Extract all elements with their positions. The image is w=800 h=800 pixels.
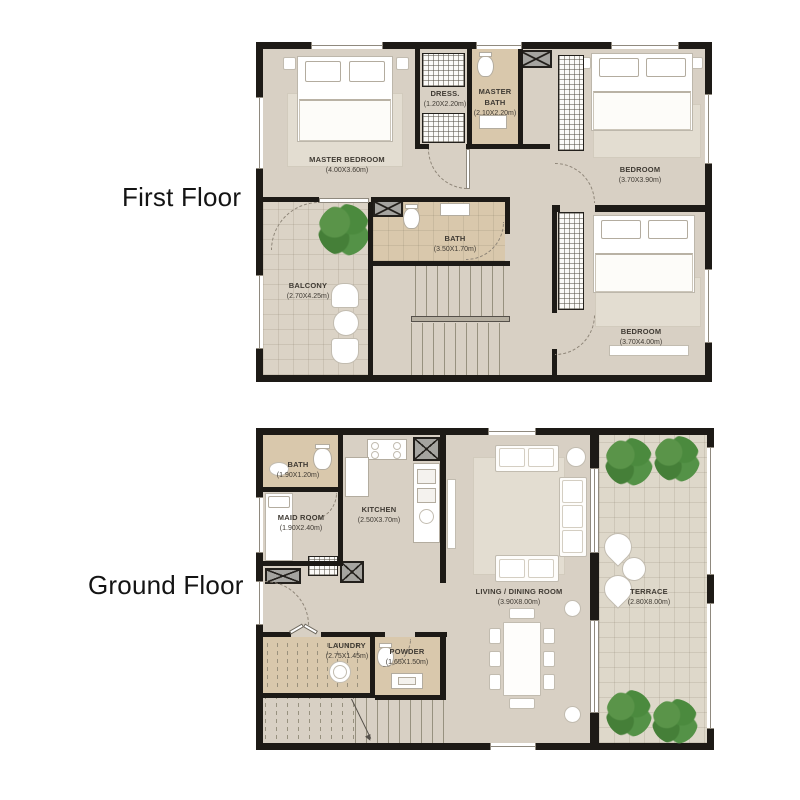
shaft <box>520 50 552 68</box>
wall <box>338 435 343 566</box>
blanket <box>299 99 391 141</box>
balcony-table <box>333 310 359 336</box>
burner <box>371 451 379 459</box>
balcony-chair <box>331 338 359 364</box>
plant-icon <box>652 699 698 744</box>
closet <box>558 55 584 151</box>
bifold-door <box>289 624 304 635</box>
cushion <box>562 480 583 503</box>
toilet-icon <box>477 56 494 77</box>
plant-icon <box>318 204 370 256</box>
dining-chair <box>489 674 501 690</box>
dining-table <box>503 622 541 696</box>
closet <box>422 53 465 87</box>
room-label-maid-room: MAID ROOM (1.90X2.40m) <box>265 513 337 534</box>
wall <box>263 197 319 202</box>
wall <box>440 632 446 700</box>
wall <box>263 487 343 492</box>
sliding-door <box>590 620 599 713</box>
ground-floor-plan: BATH (1.90X1.20m) MAID ROOM (1.90X2.40m)… <box>256 428 714 750</box>
stair-rail <box>411 316 510 322</box>
cushion <box>562 505 583 528</box>
room-label-bath: BATH (3.50X1.70m) <box>415 234 495 255</box>
wall <box>466 144 550 149</box>
pillow <box>349 61 385 82</box>
dining-chair <box>489 651 501 667</box>
stairs-under <box>265 698 355 743</box>
window <box>256 497 263 553</box>
wall <box>590 713 599 743</box>
ceiling-light <box>564 706 581 723</box>
room-label-living-dining: LIVING / DINING ROOM (3.90X8.00m) <box>445 587 593 608</box>
dining-chair <box>509 698 535 709</box>
room-label-kitchen: KITCHEN (2.50X3.70m) <box>333 505 425 526</box>
window <box>256 97 263 169</box>
pillow <box>601 220 641 239</box>
wall <box>595 205 705 212</box>
window <box>705 269 712 343</box>
pillow <box>648 220 688 239</box>
window <box>611 42 679 49</box>
dining-chair <box>489 628 501 644</box>
first-floor-plan: MASTER BEDROOM (4.00X3.60m) DRESS. (1.20… <box>256 42 712 382</box>
room-label-terrace: TERRACE (2.80X8.00m) <box>597 587 701 608</box>
room-label-balcony: BALCONY (2.70X4.25m) <box>265 281 351 302</box>
washer-drum <box>333 665 347 679</box>
room-label-bath: BATH (1.90X1.20m) <box>269 460 327 481</box>
window <box>256 275 263 349</box>
stairs <box>415 266 510 316</box>
room-label-bedroom-2: BEDROOM (3.70X4.00m) <box>589 327 693 348</box>
room-label-powder: POWDER (1.65X1.50m) <box>375 647 439 668</box>
side-table <box>566 447 586 467</box>
cushion <box>528 448 554 467</box>
shaft <box>413 437 440 461</box>
burner <box>393 442 401 450</box>
window <box>705 94 712 164</box>
terrace-table <box>622 557 646 581</box>
wall <box>368 202 373 375</box>
window <box>707 603 714 729</box>
wall <box>263 561 343 566</box>
sliding-door <box>590 468 599 553</box>
kitchen-sink <box>417 488 436 503</box>
sink-basin <box>398 677 416 685</box>
room-label-master-bath: MASTER BATH (2.10X2.20m) <box>467 87 523 119</box>
wall <box>440 435 446 583</box>
wall <box>415 144 429 149</box>
wall <box>552 205 560 212</box>
wall <box>263 632 291 637</box>
wall <box>321 632 385 637</box>
kitchen-cabinet <box>345 457 369 497</box>
closet <box>308 556 338 576</box>
blanket <box>593 91 691 130</box>
plant-icon <box>605 438 653 486</box>
cushion <box>562 530 583 553</box>
kitchen-sink <box>417 469 436 484</box>
ground-floor-title: Ground Floor <box>88 570 244 601</box>
door-leaf <box>319 198 369 203</box>
cushion <box>499 559 525 578</box>
sink-icon <box>440 203 470 216</box>
dining-chair <box>543 674 555 690</box>
wall <box>263 693 375 698</box>
cushion <box>499 448 525 467</box>
stairs <box>411 323 510 375</box>
wall <box>373 261 510 266</box>
first-floor-title: First Floor <box>122 182 241 213</box>
closet <box>422 113 465 143</box>
pillow <box>305 61 341 82</box>
window <box>488 428 536 435</box>
window <box>490 743 536 750</box>
burner <box>393 451 401 459</box>
door-arc <box>265 581 309 625</box>
closet <box>558 212 584 310</box>
dining-chair <box>509 608 535 619</box>
wall <box>590 435 599 468</box>
window <box>476 42 522 49</box>
nightstand <box>283 57 296 70</box>
room-label-master-bedroom: MASTER BEDROOM (4.00X3.60m) <box>291 155 403 176</box>
shaft <box>340 561 364 583</box>
door-arc <box>428 149 468 189</box>
plant-icon <box>654 436 700 482</box>
toilet-icon <box>403 208 420 229</box>
plant-icon <box>606 690 652 737</box>
tv-console <box>447 479 456 549</box>
wall <box>505 202 510 234</box>
pillow <box>599 58 639 77</box>
bifold-door <box>303 624 318 635</box>
cushion <box>528 559 554 578</box>
page: { "page": { "background": "#ffffff" }, "… <box>0 0 800 800</box>
wall <box>375 695 446 700</box>
window <box>707 447 714 575</box>
blanket <box>595 253 693 292</box>
dining-chair <box>543 651 555 667</box>
wall <box>371 197 510 202</box>
entry-door-opening <box>256 581 263 625</box>
pillow <box>646 58 686 77</box>
wall <box>552 212 557 313</box>
burner <box>371 442 379 450</box>
pillow <box>268 496 290 508</box>
nightstand <box>396 57 409 70</box>
window <box>311 42 383 49</box>
shaft <box>373 200 403 217</box>
room-label-bedroom-1: BEDROOM (3.70X3.90m) <box>588 165 692 186</box>
dining-chair <box>543 628 555 644</box>
